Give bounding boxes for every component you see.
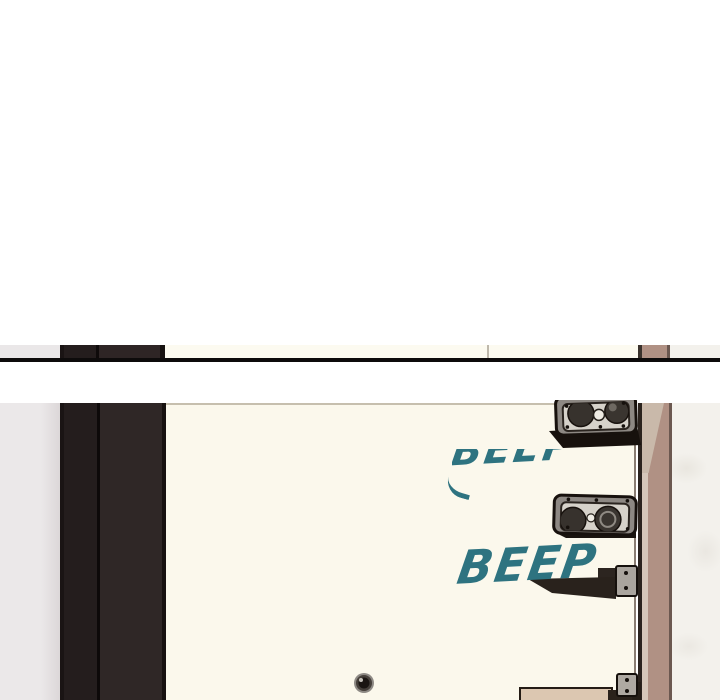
dark-frame-strip	[99, 345, 160, 358]
bottom-hinge-bar	[520, 674, 641, 700]
comic-page: BEEP BEEP	[0, 0, 720, 700]
left-wall-sliver	[0, 345, 60, 358]
door-jamb-strip	[642, 345, 667, 358]
sfx-beep-faded-text: BEEP	[452, 449, 578, 472]
door-surface-sliver	[165, 345, 638, 358]
electronic-lock-lower	[554, 495, 637, 538]
previous-panel-sliver	[0, 345, 720, 358]
peephole	[354, 673, 374, 693]
sfx-beep-faded: BEEP	[452, 449, 584, 479]
sfx-beep: BEEP	[458, 541, 598, 587]
dark-frame-strip	[64, 345, 96, 358]
right-wall-sliver	[670, 345, 720, 358]
panel-border-line	[0, 358, 720, 362]
wall-seam-line	[487, 345, 489, 358]
electronic-lock-upper	[549, 400, 641, 448]
sfx-beep-text: BEEP	[454, 537, 601, 591]
door-hardware-layer	[0, 400, 720, 700]
